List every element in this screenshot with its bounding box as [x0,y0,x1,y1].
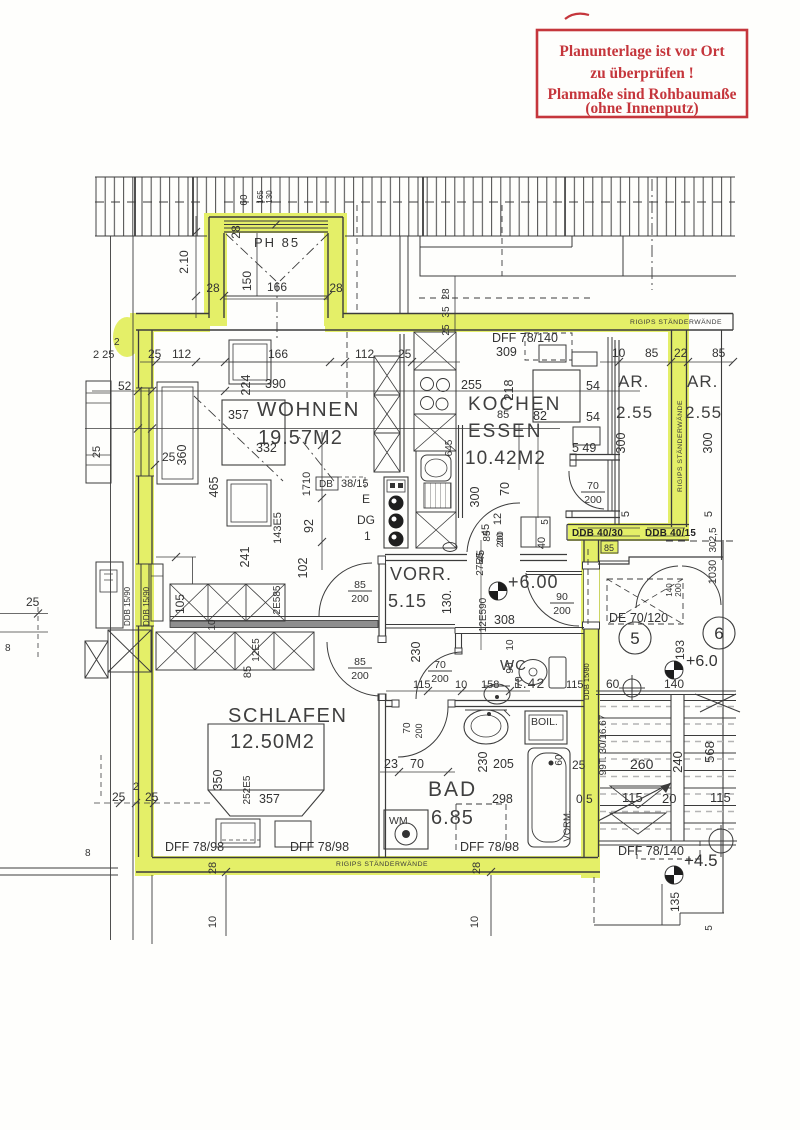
svg-text:(ohne Innenputz): (ohne Innenputz) [585,100,698,117]
svg-text:25: 25 [572,758,586,772]
svg-text:302,5: 302,5 [708,527,719,552]
svg-text:115: 115 [622,790,643,805]
svg-text:DFF 78/98: DFF 78/98 [460,840,519,854]
svg-text:5 49: 5 49 [572,441,596,455]
svg-text:DFF 78/98: DFF 78/98 [290,840,349,854]
svg-text:+4.5: +4.5 [684,851,718,870]
svg-text:165: 165 [256,190,265,204]
svg-text:200: 200 [351,593,369,605]
svg-text:130.: 130. [440,590,454,614]
svg-text:AR.: AR. [618,372,649,391]
svg-text:20: 20 [662,791,676,806]
svg-text:1030: 1030 [707,560,719,584]
svg-text:28: 28 [441,288,452,300]
svg-text:200: 200 [584,494,602,506]
svg-text:332: 332 [256,441,277,455]
svg-text:300: 300 [614,433,628,454]
svg-text:298: 298 [492,792,513,806]
svg-text:105: 105 [173,594,187,614]
svg-text:85: 85 [482,530,493,542]
svg-text:VORM.: VORM. [562,810,573,841]
svg-text:200: 200 [351,670,369,682]
svg-text:5: 5 [703,511,715,517]
svg-text:DFF 78/140: DFF 78/140 [618,844,684,858]
svg-text:60: 60 [554,754,565,766]
svg-text:70: 70 [410,757,424,771]
svg-text:60: 60 [239,194,250,206]
svg-text:E: E [362,492,370,506]
svg-text:5: 5 [704,925,715,931]
svg-text:22: 22 [674,346,688,360]
svg-text:2: 2 [133,781,139,793]
svg-text:166: 166 [267,280,287,294]
svg-text:85: 85 [242,666,254,678]
svg-text:70: 70 [434,659,446,671]
svg-text:85: 85 [604,543,614,553]
svg-text:360: 360 [175,445,189,466]
svg-text:10: 10 [455,679,467,691]
svg-text:54: 54 [586,379,600,393]
svg-text:112: 112 [355,347,374,361]
svg-text:28: 28 [206,281,220,295]
svg-text:300: 300 [701,433,715,454]
svg-text:1: 1 [364,529,371,543]
svg-text:200: 200 [495,532,505,547]
svg-text:DB: DB [319,479,333,490]
svg-text:150: 150 [240,271,254,291]
svg-text:193: 193 [673,640,687,660]
svg-text:10: 10 [612,346,626,360]
svg-text:390: 390 [265,377,286,391]
svg-text:2.10: 2.10 [177,250,191,274]
svg-text:85: 85 [645,346,659,360]
svg-text:240: 240 [670,751,685,773]
svg-text:AR.: AR. [687,372,718,391]
svg-text:10: 10 [505,639,516,651]
svg-text:28: 28 [471,862,483,874]
svg-text:DG: DG [357,513,375,527]
svg-text:205: 205 [493,757,514,771]
svg-text:5: 5 [540,519,551,525]
svg-text:28: 28 [207,862,219,874]
svg-text:92: 92 [302,519,316,533]
svg-text:102: 102 [296,558,310,579]
svg-text:70: 70 [587,480,599,492]
svg-text:DDB 15/90: DDB 15/90 [123,586,132,626]
svg-text:25: 25 [145,790,159,804]
svg-text:200: 200 [674,583,683,597]
svg-text:12: 12 [492,513,504,525]
svg-text:90: 90 [556,591,568,603]
svg-text:8: 8 [85,848,91,859]
svg-text:10.42M2: 10.42M2 [465,448,546,469]
svg-text:RIGIPS STÄNDERWÄNDE: RIGIPS STÄNDERWÄNDE [336,860,428,868]
svg-text:230: 230 [409,642,423,663]
svg-text:27E5: 27E5 [475,552,486,576]
svg-text:112: 112 [172,347,191,361]
svg-text:130: 130 [265,190,274,204]
svg-text:28: 28 [229,225,243,239]
svg-text:260: 260 [630,756,654,772]
svg-text:6: 6 [714,624,723,643]
svg-text:255: 255 [461,378,482,392]
svg-text:99T. 30/16.67: 99T. 30/16.67 [598,714,609,775]
svg-text:40: 40 [536,537,548,549]
svg-text:35: 35 [441,306,452,318]
svg-text:25: 25 [91,446,103,458]
svg-text:5: 5 [630,629,639,648]
svg-text:RIGIPS STÄNDERWÄNDE: RIGIPS STÄNDERWÄNDE [676,400,684,492]
svg-text:1710: 1710 [301,472,313,496]
svg-text:140: 140 [664,677,684,691]
svg-text:5.15: 5.15 [388,591,427,611]
svg-text:25: 25 [26,595,40,609]
svg-text:70: 70 [498,482,512,496]
svg-text:224: 224 [239,375,253,396]
svg-text:PH 85: PH 85 [254,235,300,250]
svg-text:38/15: 38/15 [341,478,369,490]
svg-text:135: 135 [668,892,682,912]
svg-text:BAD: BAD [428,778,477,801]
svg-text:166: 166 [268,347,288,361]
svg-text:115: 115 [413,679,431,691]
svg-text:2: 2 [114,337,120,348]
svg-text:DDB 15/90: DDB 15/90 [142,586,151,626]
svg-text:12.50M2: 12.50M2 [230,731,315,753]
svg-text:WOHNEN: WOHNEN [257,398,360,421]
svg-text:VORR.: VORR. [390,564,452,584]
svg-text:Planunterlage ist vor Ort: Planunterlage ist vor Ort [559,43,725,60]
svg-text:200: 200 [414,723,424,738]
svg-text:357: 357 [228,408,249,422]
svg-text:85: 85 [497,409,509,421]
svg-text:6.85: 6.85 [431,807,474,829]
svg-text:70: 70 [402,722,413,734]
svg-text:ESSEN: ESSEN [468,421,542,442]
svg-text:2 25: 2 25 [93,349,114,361]
svg-text:309: 309 [496,345,517,359]
svg-text:241: 241 [238,547,252,568]
svg-text:WC: WC [500,657,527,674]
svg-text:568: 568 [702,741,717,763]
svg-text:230: 230 [476,752,490,773]
svg-text:143E5: 143E5 [272,512,284,544]
svg-text:85: 85 [354,656,366,668]
svg-text:60: 60 [606,677,620,691]
svg-text:23: 23 [384,757,398,771]
svg-text:5: 5 [620,511,632,517]
svg-text:BOIL.: BOIL. [531,716,558,728]
svg-text:10: 10 [469,916,481,928]
svg-text:85: 85 [712,346,726,360]
svg-text:RIGIPS STÄNDERWÄNDE: RIGIPS STÄNDERWÄNDE [630,318,722,326]
svg-text:DFF 78/98: DFF 78/98 [165,840,224,854]
svg-text:85: 85 [354,579,366,591]
svg-text:350: 350 [211,770,225,791]
svg-text:54: 54 [586,410,600,424]
svg-text:2.55: 2.55 [616,403,653,422]
svg-text:357: 357 [259,792,280,806]
svg-text:12E5: 12E5 [251,638,262,662]
svg-text:2E585: 2E585 [272,585,283,614]
svg-text:252E5: 252E5 [242,775,253,804]
svg-text:200: 200 [553,605,571,617]
svg-text:300: 300 [468,487,482,508]
svg-text:2.55: 2.55 [685,403,722,422]
svg-text:115: 115 [566,679,584,691]
svg-text:308: 308 [494,613,515,627]
svg-text:218: 218 [502,380,516,401]
svg-text:25: 25 [112,790,126,804]
svg-text:DDB 40/15: DDB 40/15 [645,528,696,539]
svg-text:82: 82 [533,409,547,423]
svg-text:10: 10 [207,916,219,928]
svg-text:200: 200 [431,673,449,685]
svg-text:zu überprüfen !: zu überprüfen ! [590,65,693,82]
svg-text:+6.0: +6.0 [686,653,718,670]
svg-text:10: 10 [207,619,218,631]
svg-text:140: 140 [665,583,674,597]
svg-text:465: 465 [207,477,221,498]
svg-text:DDB 40/30: DDB 40/30 [572,528,623,539]
svg-text:8: 8 [5,643,11,654]
svg-text:0 5: 0 5 [576,792,593,806]
svg-text:115: 115 [710,790,731,805]
svg-text:645: 645 [444,439,455,456]
svg-text:25: 25 [162,450,176,464]
